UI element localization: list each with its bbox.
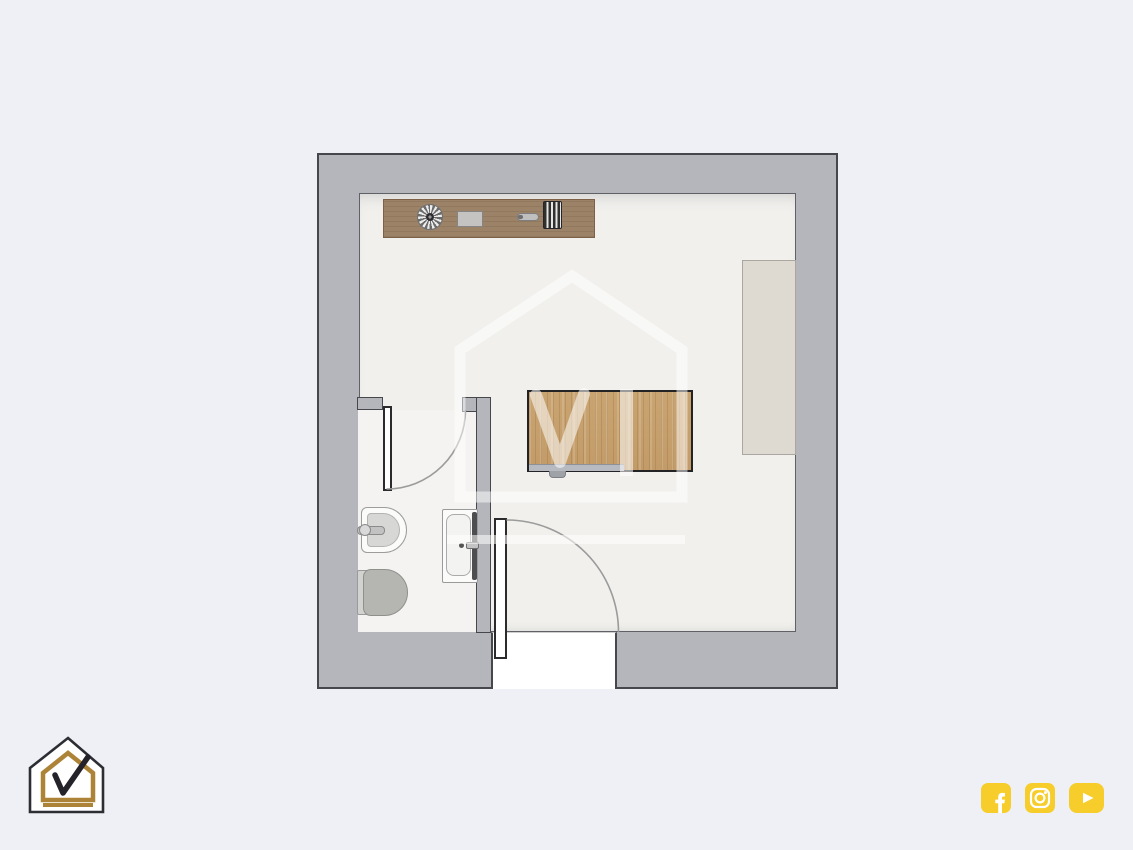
floor-plan-canvas: [0, 0, 1133, 850]
youtube-icon[interactable]: [1069, 783, 1104, 813]
brand-house-check-logo[interactable]: [28, 736, 106, 816]
wooden-table: [527, 390, 693, 472]
bathroom-wall-stub: [357, 397, 383, 410]
entrance-opening: [491, 632, 617, 689]
wardrobe-panel: [742, 260, 796, 455]
chair-tab: [549, 471, 566, 478]
instagram-icon[interactable]: [1025, 783, 1055, 813]
facebook-icon[interactable]: [981, 783, 1011, 813]
wall-desk: [383, 199, 595, 238]
sink-faucet: [459, 543, 464, 548]
sink-faucet-handle: [466, 542, 479, 549]
bidet-faucet-knob: [359, 524, 371, 536]
toilet: [363, 569, 408, 616]
entrance-door-leaf: [494, 518, 507, 659]
desk-pen: [517, 213, 539, 221]
bathroom-partition-wall: [476, 397, 491, 633]
desk-fan-icon: [417, 204, 443, 230]
pen-tip: [518, 215, 523, 219]
desk-tray: [457, 211, 483, 227]
desk-books: [543, 201, 562, 229]
social-links: [981, 783, 1106, 815]
logo-underline: [43, 803, 93, 807]
bathroom-door-leaf: [383, 406, 392, 491]
fan-hub: [426, 213, 434, 221]
table-ledge: [529, 464, 624, 471]
